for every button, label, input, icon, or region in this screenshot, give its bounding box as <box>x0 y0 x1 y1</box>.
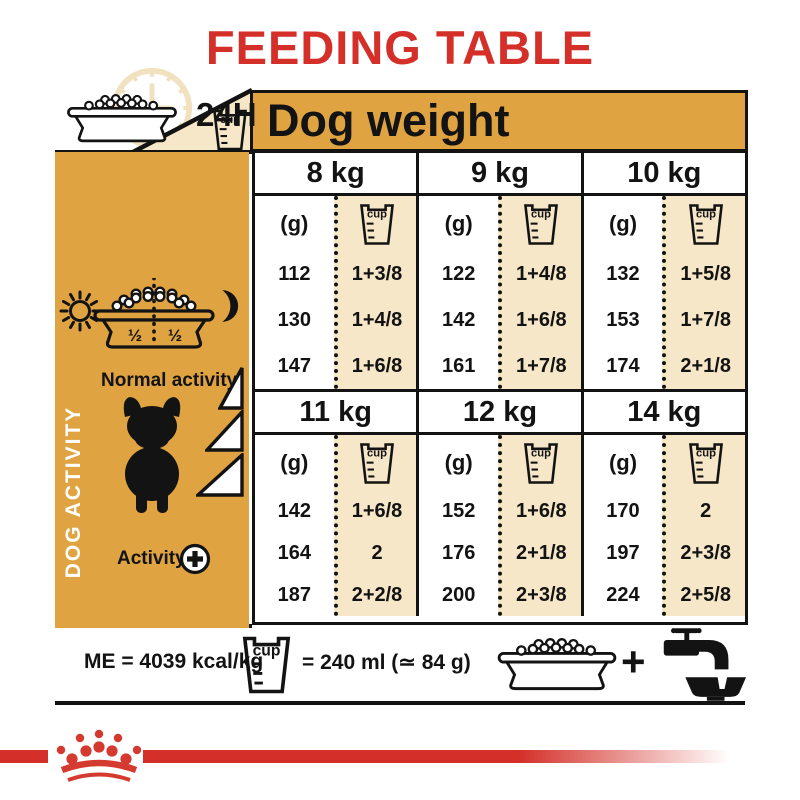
grams-value: 161 <box>419 343 498 389</box>
activity-plus-icon <box>178 542 212 576</box>
svg-text:cup: cup <box>696 208 716 220</box>
weight-header: 12 kg <box>419 392 580 435</box>
moon-icon <box>212 288 240 324</box>
cups-value: 1+3/8 <box>338 252 417 298</box>
activity-level-2-triangle <box>205 410 244 452</box>
grams-unit-label: (g) <box>584 196 663 252</box>
grams-value: 174 <box>584 343 663 389</box>
grams-value: 122 <box>419 252 498 298</box>
grams-unit-label: (g) <box>255 196 334 252</box>
weight-header-label: 10 kg <box>627 157 701 190</box>
measuring-cup-icon: cup <box>666 435 745 491</box>
grams-value: 200 <box>419 574 498 616</box>
cups-value: 1+5/8 <box>666 252 745 298</box>
svg-text:cup: cup <box>531 447 551 459</box>
cups-value: 1+7/8 <box>666 298 745 344</box>
weight-header: 11 kg <box>255 392 416 435</box>
cups-value: 2+1/8 <box>666 343 745 389</box>
measuring-cup-icon: cup <box>502 435 581 491</box>
grams-subcolumn: (g)152176200 <box>419 435 498 616</box>
weight-header: 9 kg <box>419 153 580 196</box>
grams-value: 142 <box>419 298 498 344</box>
grams-value: 176 <box>419 533 498 575</box>
grams-value: 187 <box>255 574 334 616</box>
weight-column-body: (g)152176200cup1+6/82+1/82+3/8 <box>419 435 580 616</box>
grams-value: 152 <box>419 491 498 533</box>
cups-value: 2+5/8 <box>666 574 745 616</box>
half-right-label: ½ <box>168 326 182 345</box>
cups-subcolumn: cup1+3/81+4/81+6/8 <box>334 196 417 389</box>
french-bulldog-icon <box>113 395 191 513</box>
cups-subcolumn: cup1+6/822+2/8 <box>334 435 417 616</box>
cups-value: 1+6/8 <box>338 343 417 389</box>
grams-unit-label: (g) <box>584 435 663 491</box>
cups-value: 1+6/8 <box>502 298 581 344</box>
half-left-label: ½ <box>128 326 142 345</box>
weight-column: 10 kg(g)132153174cup1+5/81+7/82+1/8 <box>584 153 745 389</box>
weight-header-label: 9 kg <box>471 157 529 190</box>
cups-subcolumn: cup1+5/81+7/82+1/8 <box>662 196 745 389</box>
grams-value: 132 <box>584 252 663 298</box>
grams-value: 164 <box>255 533 334 575</box>
cups-value: 1+4/8 <box>338 298 417 344</box>
activity-level-1-triangle <box>218 366 244 410</box>
weight-header: 10 kg <box>584 153 745 196</box>
svg-text:cup: cup <box>220 114 240 126</box>
weight-column: 9 kg(g)122142161cup1+4/81+6/81+7/8 <box>419 153 583 389</box>
grams-value: 197 <box>584 533 663 575</box>
grams-subcolumn: (g)142164187 <box>255 435 334 616</box>
weight-column: 12 kg(g)152176200cup1+6/82+1/82+3/8 <box>419 392 583 616</box>
dog-activity-vertical-label: DOG ACTIVITY <box>60 357 88 627</box>
svg-text:cup: cup <box>367 208 387 220</box>
grams-unit-label: (g) <box>419 435 498 491</box>
food-bowl-icon <box>56 94 188 144</box>
svg-text:cup: cup <box>367 447 387 459</box>
cups-value: 2+2/8 <box>338 574 417 616</box>
grams-subcolumn: (g)122142161 <box>419 196 498 389</box>
measuring-cup-icon: cup <box>502 196 581 252</box>
cups-value: 2+3/8 <box>666 533 745 575</box>
normal-activity-label: Normal activity <box>101 370 237 392</box>
grams-subcolumn: (g)112130147 <box>255 196 334 389</box>
cup-equivalence-label: = 240 ml (≃ 84 g) <box>302 650 471 675</box>
activity-level-3-triangle <box>196 453 244 497</box>
measuring-cup-icon: cup <box>240 633 293 697</box>
weight-column-body: (g)122142161cup1+4/81+6/81+7/8 <box>419 196 580 389</box>
cups-value: 1+6/8 <box>502 491 581 533</box>
cups-subcolumn: cup1+6/82+1/82+3/8 <box>498 435 581 616</box>
half-portions-bowl-icon: ½ ½ <box>91 278 217 358</box>
feeding-grid: 8 kg(g)112130147cup1+3/81+4/81+6/89 kg(g… <box>252 150 748 625</box>
cups-value: 1+6/8 <box>338 491 417 533</box>
weight-column-body: (g)112130147cup1+3/81+4/81+6/8 <box>255 196 416 389</box>
brand-stripe-right <box>143 750 748 763</box>
weight-column: 11 kg(g)142164187cup1+6/822+2/8 <box>255 392 419 616</box>
weight-column-body: (g)132153174cup1+5/81+7/82+1/8 <box>584 196 745 389</box>
svg-text:cup: cup <box>696 447 716 459</box>
footer-divider-line <box>55 701 745 705</box>
grams-value: 153 <box>584 298 663 344</box>
cups-value: 2 <box>338 533 417 575</box>
grams-value: 142 <box>255 491 334 533</box>
weight-column-body: (g)170197224cup22+3/82+5/8 <box>584 435 745 616</box>
cups-value: 1+7/8 <box>502 343 581 389</box>
weight-header: 8 kg <box>255 153 416 196</box>
measuring-cup-icon: cup <box>338 196 417 252</box>
grams-value: 224 <box>584 574 663 616</box>
cups-value: 1+4/8 <box>502 252 581 298</box>
cups-value: 2 <box>666 491 745 533</box>
plus-sign: + <box>621 638 646 686</box>
measuring-cup-icon: cup <box>211 108 249 152</box>
activity-label: Activity <box>117 548 186 570</box>
weight-header-label: 12 kg <box>463 396 537 429</box>
grams-unit-label: (g) <box>255 435 334 491</box>
weight-header-label: 14 kg <box>627 396 701 429</box>
weight-header-label: 8 kg <box>307 157 365 190</box>
svg-text:cup: cup <box>253 642 281 659</box>
dog-weight-header-label: Dog weight <box>267 95 509 147</box>
weight-header: 14 kg <box>584 392 745 435</box>
weight-column-body: (g)142164187cup1+6/822+2/8 <box>255 435 416 616</box>
dog-activity-sidebar: ½ ½ DOG ACTIVITY Normal activity <box>55 152 249 628</box>
grams-value: 112 <box>255 252 334 298</box>
cups-value: 2+3/8 <box>502 574 581 616</box>
grams-value: 170 <box>584 491 663 533</box>
svg-text:cup: cup <box>531 208 551 220</box>
grams-subcolumn: (g)170197224 <box>584 435 663 616</box>
measuring-cup-icon: cup <box>338 435 417 491</box>
weight-bank: 8 kg(g)112130147cup1+3/81+4/81+6/89 kg(g… <box>255 153 745 392</box>
metabolizable-energy-label: ME = 4039 kcal/kg <box>84 650 263 674</box>
dog-weight-header: Dog weight <box>250 90 748 152</box>
food-bowl-icon <box>494 638 620 692</box>
grams-unit-label: (g) <box>419 196 498 252</box>
cups-subcolumn: cup22+3/82+5/8 <box>662 435 745 616</box>
grams-value: 130 <box>255 298 334 344</box>
feeding-table-poster: FEEDING TABLE 24H <box>0 0 800 800</box>
weight-header-label: 11 kg <box>299 396 372 429</box>
cups-value: 2+1/8 <box>502 533 581 575</box>
grams-value: 147 <box>255 343 334 389</box>
crown-logo <box>53 725 145 785</box>
weight-bank: 11 kg(g)142164187cup1+6/822+2/812 kg(g)1… <box>255 392 745 616</box>
cups-subcolumn: cup1+4/81+6/81+7/8 <box>498 196 581 389</box>
grams-subcolumn: (g)132153174 <box>584 196 663 389</box>
water-faucet-icon <box>652 628 750 701</box>
weight-column: 8 kg(g)112130147cup1+3/81+4/81+6/8 <box>255 153 419 389</box>
measuring-cup-icon: cup <box>666 196 745 252</box>
brand-stripe-left <box>0 750 48 763</box>
weight-column: 14 kg(g)170197224cup22+3/82+5/8 <box>584 392 745 616</box>
